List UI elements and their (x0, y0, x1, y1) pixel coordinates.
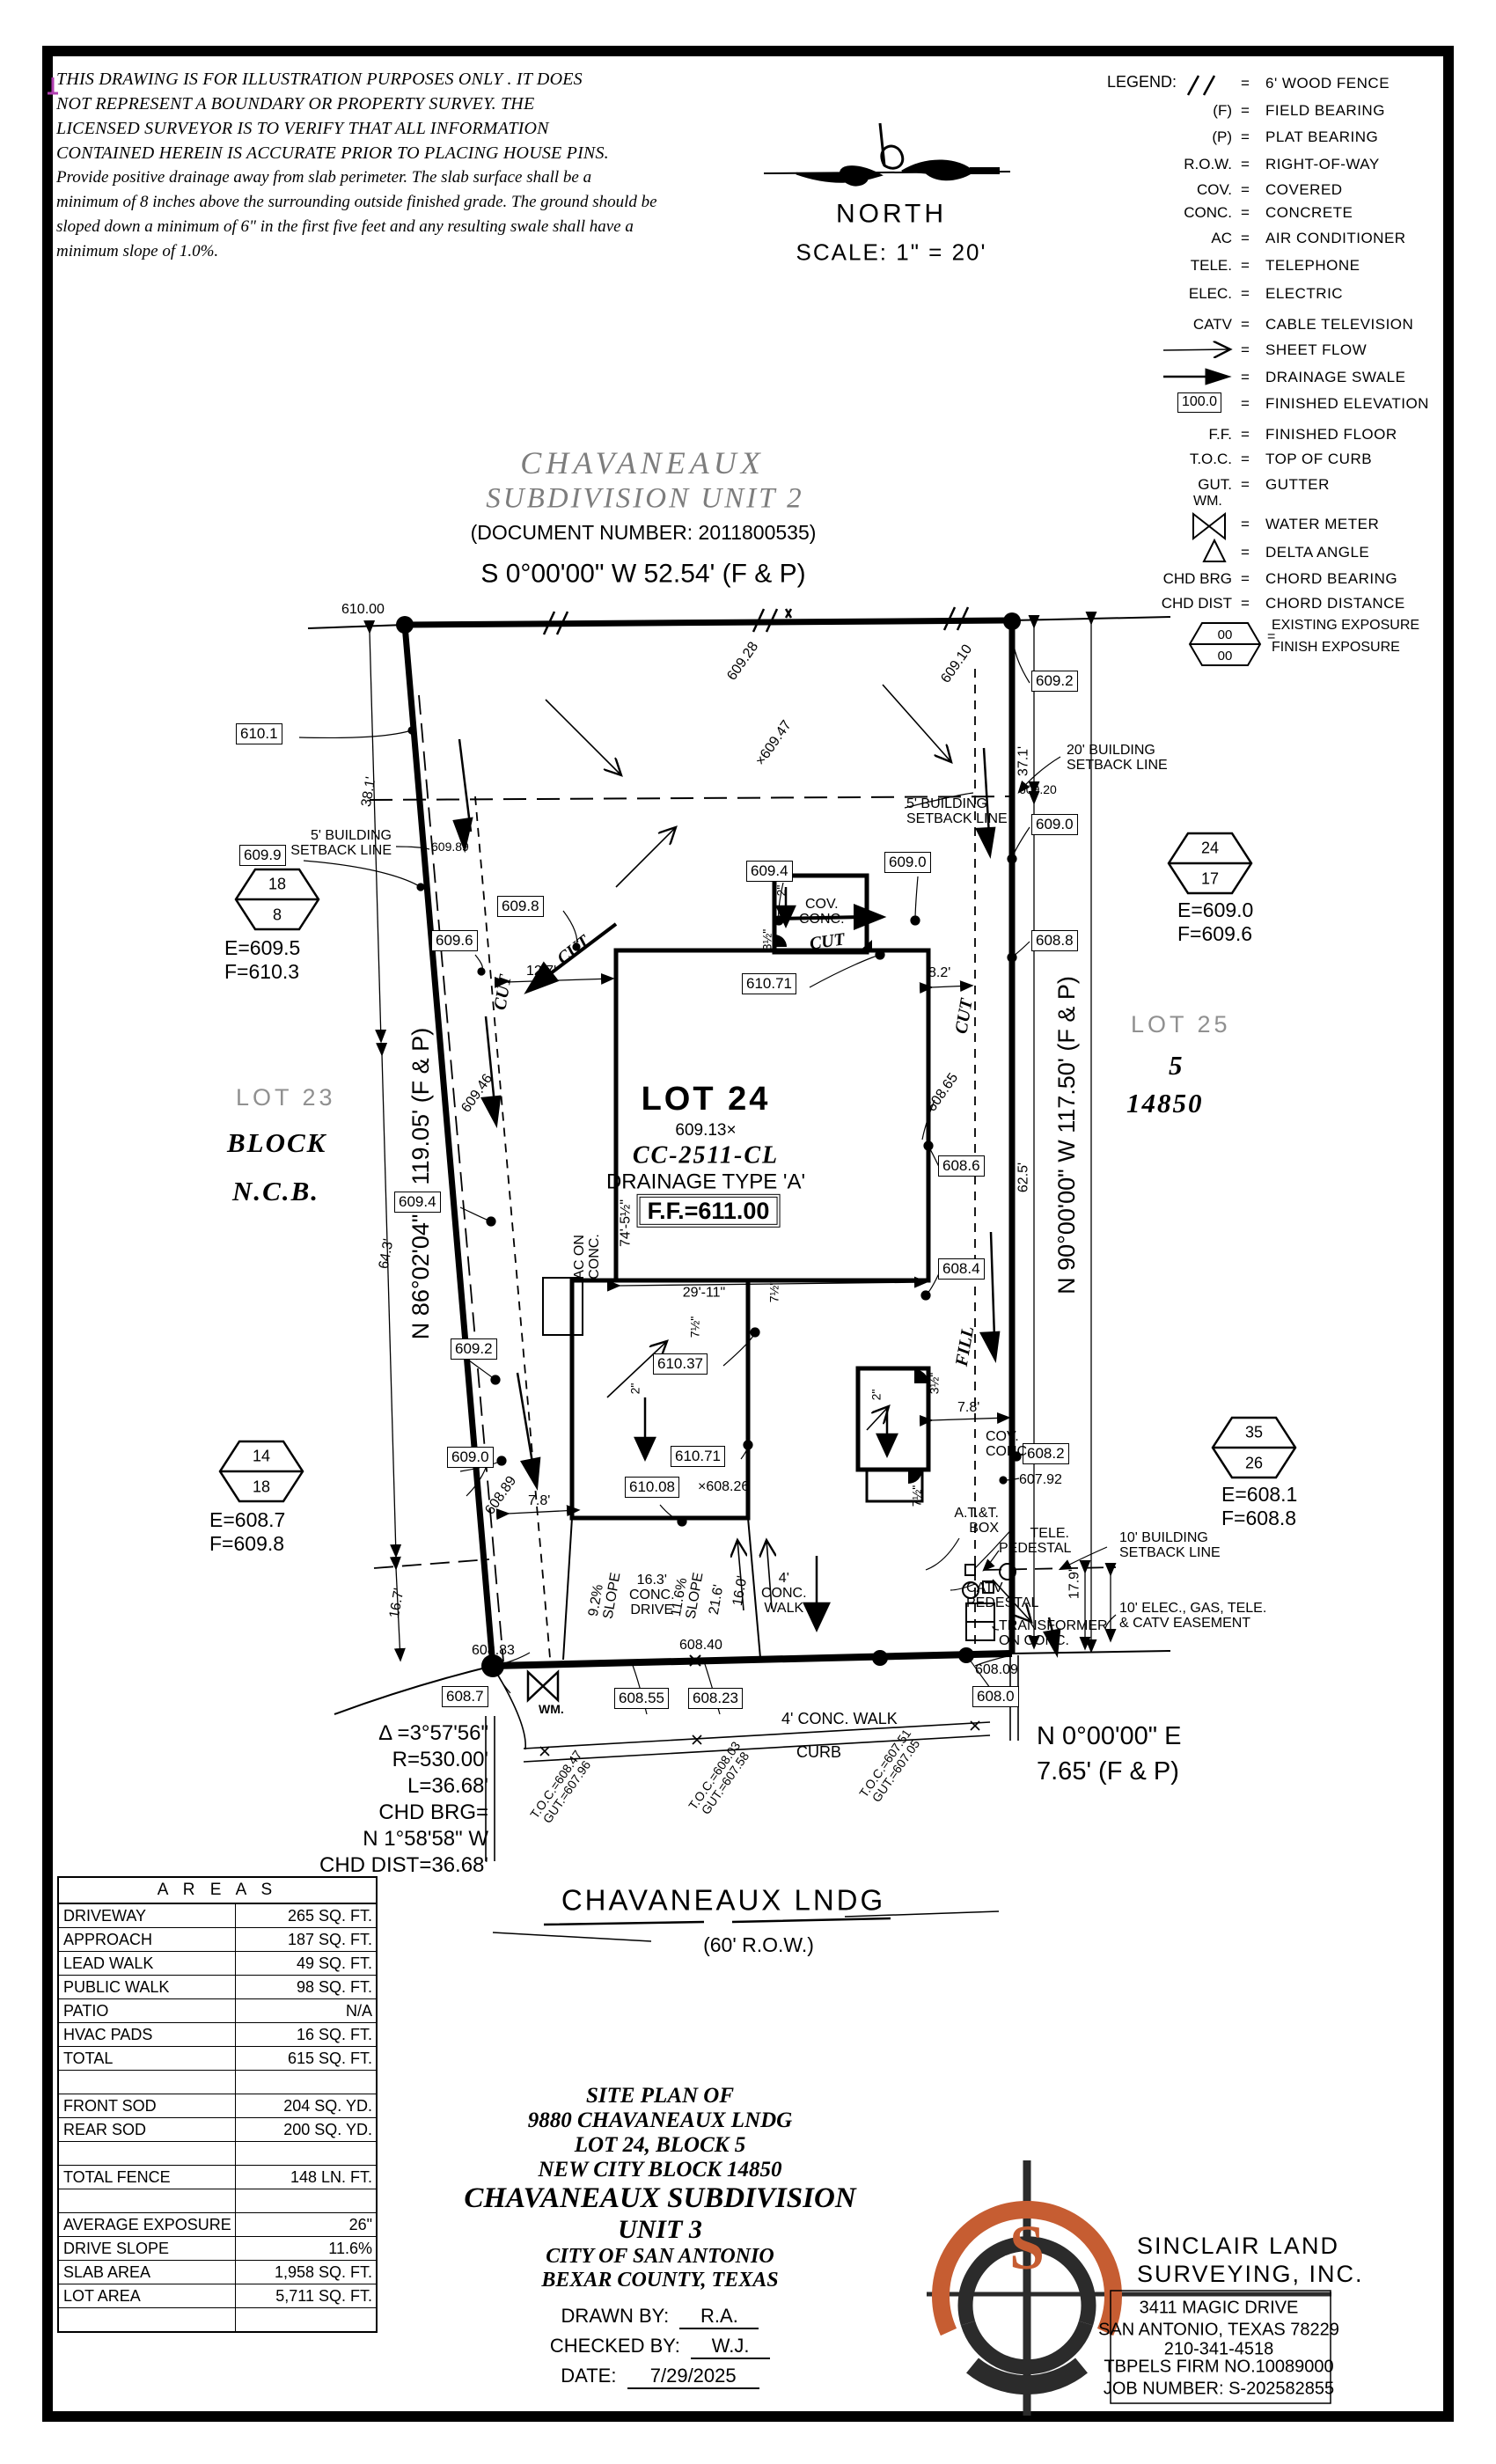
cov-conc-porch: COV.CONC. (986, 1430, 1031, 1460)
hex-14: 14 (253, 1448, 270, 1465)
street-name: CHAVANEAUX LNDG (561, 1886, 885, 1917)
areas-header: A R E A S (59, 1878, 376, 1904)
curb-label: CURB (796, 1744, 841, 1761)
conc-walk-lot: 4'CONC.WALK (761, 1572, 807, 1616)
legend-electric: ELECTRIC (1265, 285, 1343, 303)
spot-elevation: 610.00 (341, 603, 385, 618)
titleblock-line: CITY OF SAN ANTONIO (414, 2245, 906, 2269)
legend-sheet-flow: SHEET FLOW (1265, 341, 1367, 359)
legend-covered: COVERED (1265, 181, 1343, 199)
table-row: PATION/A (59, 1999, 376, 2023)
hex-existing: E=608.1 (1221, 1484, 1297, 1505)
titleblock-line: CHAVANEAUX SUBDIVISION (414, 2182, 906, 2215)
bearing-south-line-2: 7.65' (F & P) (1037, 1758, 1179, 1785)
easement-label: 10' ELEC., GAS, TELE.& CATV EASEMENT (1119, 1602, 1266, 1632)
firm-name-2: SURVEYING, INC. (1137, 2262, 1364, 2286)
table-row: APPROACH187 SQ. FT. (59, 1928, 376, 1952)
spot-elevation: 608.09 (975, 1663, 1018, 1678)
ncb-label: N.C.B. (232, 1177, 319, 1206)
bearing-west-line: N 86°02'04" E 119.05' (F & P) (408, 1028, 433, 1339)
hex-finish: F=609.6 (1177, 923, 1252, 944)
catv-pedestal-label: CATVPEDESTAL (966, 1581, 1038, 1611)
table-row: HVAC PADS16 SQ. FT. (59, 2023, 376, 2047)
street-row: (60' R.O.W.) (703, 1934, 814, 1955)
table-row (59, 2189, 376, 2213)
table-row: LOT AREA5,711 SQ. FT. (59, 2284, 376, 2308)
drainage-type: DRAINAGE TYPE 'A' (606, 1170, 805, 1192)
legend-ac: AIR CONDITIONER (1265, 230, 1406, 247)
tele-pedestal-label: TELE.PEDESTAL (999, 1527, 1069, 1557)
lot24-spot: 609.13× (675, 1122, 736, 1140)
hex-existing: E=608.7 (209, 1509, 285, 1530)
lot25-block: 5 (1169, 1052, 1183, 1081)
elevation-box: 610.37 (653, 1353, 708, 1375)
drainage-note-line: minimum of 8 inches above the surroundin… (56, 190, 725, 215)
lot25-label: LOT 25 (1131, 1012, 1231, 1037)
street-walk-label: 4' CONC. WALK (781, 1711, 898, 1727)
sinclair-logo-icon (927, 2160, 1331, 2416)
elevation-box: 610.71 (742, 973, 796, 994)
dim-17-9: 17.9' (1068, 1569, 1083, 1599)
elevation-box: 609.0 (1031, 814, 1078, 835)
table-row: TOTAL FENCE148 LN. FT. (59, 2166, 376, 2189)
table-row: TOTAL615 SQ. FT. (59, 2047, 376, 2071)
table-row: DRIVEWAY265 SQ. FT. (59, 1904, 376, 1928)
legend-chd-dist: CHORD DISTANCE (1265, 595, 1405, 612)
lot25-ncb: 14850 (1126, 1089, 1204, 1118)
hex-17: 17 (1201, 871, 1219, 888)
table-row: SLAB AREA1,958 SQ. FT. (59, 2261, 376, 2284)
hex-existing: E=609.5 (224, 937, 300, 958)
elevation-box: 608.23 (688, 1688, 743, 1709)
table-row: LEAD WALK49 SQ. FT. (59, 1952, 376, 1976)
hex-8: 8 (273, 907, 282, 924)
hex-35: 35 (1245, 1425, 1263, 1441)
drainage-note-line: sloped down a minimum of 6" in the first… (56, 215, 725, 239)
drainage-note-line: minimum slope of 1.0%. (56, 239, 725, 264)
elevation-box: 608.7 (442, 1686, 488, 1707)
dim-12-7: 12.7' (526, 964, 556, 979)
titleblock-line: LOT 24, BLOCK 5 (414, 2133, 906, 2158)
disclaimer-line: THIS DRAWING IS FOR ILLUSTRATION PURPOSE… (56, 67, 725, 92)
elevation-box: 608.55 (614, 1688, 669, 1709)
lot24-title: LOT 24 (642, 1082, 771, 1118)
table-row: DRIVE SLOPE11.6% (59, 2237, 376, 2261)
table-row: FRONT SOD204 SQ. YD. (59, 2094, 376, 2118)
dim-8-2: 8.2' (928, 966, 950, 981)
north-arrow-icon (764, 123, 1010, 185)
elevation-box: 609.6 (431, 930, 478, 951)
hex-24: 24 (1201, 840, 1219, 857)
dim-7half: 7½" (689, 1316, 702, 1338)
bearing-north-line: S 0°00'00" W 52.54' (F & P) (480, 560, 805, 588)
legend-catv: CABLE TELEVISION (1265, 316, 1413, 334)
elevation-box: 609.0 (447, 1447, 494, 1468)
areas-table: A R E A S DRIVEWAY265 SQ. FT. APPROACH18… (57, 1876, 378, 2333)
table-row: AVERAGE EXPOSURE26" (59, 2213, 376, 2237)
firm-phone: 210-341-4518 (1164, 2341, 1274, 2359)
spot-elevation: 609.20 (1019, 783, 1057, 796)
table-row: REAR SOD200 SQ. YD. (59, 2118, 376, 2142)
legend-row: RIGHT-OF-WAY (1265, 156, 1380, 173)
table-row (59, 2308, 376, 2331)
legend-swale: DRAINAGE SWALE (1265, 369, 1405, 386)
legend-hex-top: 00 (1218, 628, 1233, 642)
dim-62-5: 62.5' (1017, 1162, 1032, 1192)
legend-finish-exposure: FINISH EXPOSURE (1272, 641, 1400, 656)
firm-name-1: SINCLAIR LAND (1137, 2233, 1339, 2258)
curve-data: Δ =3°57'56"R=530.00' L=36.68'CHD BRG= N … (282, 1720, 488, 1879)
legend-finished-elev: FINISHED ELEVATION (1265, 395, 1429, 413)
setback-label-right: 5' BUILDINGSETBACK LINE (906, 797, 1008, 827)
legend-toc: TOP OF CURB (1265, 451, 1372, 468)
subdivision-title-1: CHAVANEAUX (520, 447, 765, 480)
hex-existing: E=609.0 (1177, 899, 1253, 920)
dim-7-8-porch: 7.8' (957, 1401, 979, 1416)
date-field: DATE: 7/29/2025 (414, 2365, 906, 2389)
titleblock-line: SITE PLAN OF (414, 2084, 906, 2108)
legend-ff: FINISHED FLOOR (1265, 426, 1397, 444)
table-row: PUBLIC WALK98 SQ. FT. (59, 1976, 376, 1999)
ac-on-conc: AC ONCONC. (573, 1234, 603, 1280)
north-label: NORTH (836, 200, 947, 228)
titleblock-line: NEW CITY BLOCK 14850 (414, 2158, 906, 2182)
spot-elevation: 607.92 (1019, 1473, 1062, 1488)
dim-7-8-left: 7.8' (528, 1494, 550, 1509)
dim-3half: 3½" (928, 1373, 942, 1394)
legend-field-bearing: FIELD BEARING (1265, 102, 1385, 120)
bearing-east-line: N 90°00'00" W 117.50' (F & P) (1054, 976, 1079, 1294)
legend-fence: 6' WOOD FENCE (1265, 75, 1390, 92)
titleblock-line: UNIT 3 (414, 2215, 906, 2245)
title-block: SITE PLAN OF 9880 CHAVANEAUX LNDG LOT 24… (414, 2084, 906, 2389)
cov-conc-top: COV.CONC. (799, 898, 845, 928)
plan-model: CC-2511-CL (633, 1142, 779, 1168)
elevation-box: 609.4 (394, 1192, 441, 1213)
water-meter-icon (528, 1672, 558, 1700)
logo-letter-s: S (1009, 2215, 1045, 2282)
table-row (59, 2071, 376, 2094)
disclaimer-line: NOT REPRESENT A BOUNDARY OR PROPERTY SUR… (56, 92, 725, 116)
legend-existing-exposure: EXISTING EXPOSURE (1272, 619, 1419, 634)
hex-18: 18 (268, 876, 286, 893)
conc-drive: 16.3'CONC.DRIVE (629, 1573, 675, 1617)
legend-telephone: TELEPHONE (1265, 257, 1360, 275)
elevation-box: 608.8 (1031, 930, 1078, 951)
spot-elevation: ×608.26 (698, 1480, 749, 1495)
drawn-by: DRAWN BY: R.A. (414, 2305, 906, 2329)
dim-2in: 2" (629, 1383, 642, 1395)
disclaimer-note: THIS DRAWING IS FOR ILLUSTRATION PURPOSE… (56, 67, 725, 264)
setback-label-20: 20' BUILDINGSETBACK LINE (1067, 744, 1168, 774)
dim-29-11: 29'-11" (683, 1287, 725, 1302)
lot23-label: LOT 23 (236, 1085, 336, 1110)
bearing-south-line-1: N 0°00'00" E (1037, 1723, 1181, 1749)
spot-elevation: 609.89 (431, 840, 469, 854)
site-plan-sheet: THIS DRAWING IS FOR ILLUSTRATION PURPOSE… (0, 0, 1496, 2464)
elevation-box: 609.2 (1031, 671, 1078, 692)
scale-label: SCALE: 1" = 20' (796, 240, 987, 264)
hex-finish: F=609.8 (209, 1533, 284, 1554)
legend-wm-label: WM. (1193, 495, 1222, 510)
block-label: BLOCK (227, 1129, 326, 1158)
titleblock-line: 9880 CHAVANEAUX LNDG (414, 2108, 906, 2133)
legend-concrete: CONCRETE (1265, 204, 1353, 222)
elevation-box: 608.6 (938, 1155, 985, 1177)
hex-26: 26 (1245, 1456, 1263, 1472)
wm-label: WM. (539, 1703, 564, 1716)
table-row (59, 2142, 376, 2166)
titleblock-line: BEXAR COUNTY, TEXAS (414, 2269, 906, 2292)
legend-delta: DELTA ANGLE (1265, 544, 1369, 561)
firm-job-number: JOB NUMBER: S-202582855 (1104, 2380, 1334, 2399)
att-box-label: A.T.&T.BOX (946, 1507, 999, 1536)
disclaimer-line: CONTAINED HEREIN IS ACCURATE PRIOR TO PL… (56, 141, 725, 165)
checked-by: CHECKED BY: W.J. (414, 2335, 906, 2359)
dim-3half: 3½" (761, 929, 774, 950)
legend-water-meter: WATER METER (1265, 516, 1379, 533)
hex-finish: F=608.8 (1221, 1507, 1296, 1529)
elevation-box: 609.8 (497, 896, 544, 917)
elevation-box: 608.4 (938, 1258, 985, 1280)
firm-address-2: SAN ANTONIO, TEXAS 78229 (1098, 2321, 1339, 2340)
dim-37-1: 37.1' (1017, 746, 1032, 776)
elevation-box: 609.2 (451, 1338, 497, 1360)
subdivision-title-2: SUBDIVISION UNIT 2 (486, 484, 803, 515)
setback-label-10: 10' BUILDINGSETBACK LINE (1119, 1531, 1221, 1561)
spot-elevation: 608.83 (472, 1644, 515, 1659)
elevation-box: 610.71 (671, 1446, 725, 1467)
disclaimer-line: LICENSED SURVEYOR IS TO VERIFY THAT ALL … (56, 116, 725, 141)
spot-elevation: 608.40 (679, 1639, 722, 1654)
dim-2in: 2" (870, 1390, 884, 1401)
elevation-box: 609.0 (884, 852, 931, 873)
elevation-box: 609.4 (746, 861, 793, 882)
dim-74-5: 74'-5½" (620, 1199, 634, 1247)
setback-label-left: 5' BUILDINGSETBACK LINE (264, 829, 392, 859)
document-number: (DOCUMENT NUMBER: 2011800535) (471, 522, 817, 543)
legend-plat-bearing: PLAT BEARING (1265, 128, 1378, 146)
dim-7half: 7½" (911, 1485, 924, 1507)
legend-hex-bot: 00 (1218, 649, 1233, 664)
legend-elev-box: 100.0 (1177, 392, 1221, 413)
dim-7half: 7½" (768, 1281, 781, 1302)
legend-chd-brg: CHORD BEARING (1265, 570, 1397, 588)
drainage-note-line: Provide positive drainage away from slab… (56, 165, 725, 190)
transformer-label: TRANSFORMERON CONC. (999, 1619, 1108, 1649)
hex-18b: 18 (253, 1479, 270, 1496)
legend-gutter: GUTTER (1265, 476, 1330, 494)
dim-2in: 2" (775, 885, 788, 897)
hex-finish: F=610.3 (224, 961, 299, 982)
firm-address-1: 3411 MAGIC DRIVE (1140, 2299, 1299, 2318)
finished-floor: F.F.=611.00 (637, 1194, 781, 1228)
elevation-box: 610.1 (236, 723, 282, 744)
firm-tbpels: TBPELS FIRM NO.10089000 (1104, 2358, 1333, 2377)
elevation-box: 610.08 (625, 1477, 679, 1498)
elevation-box: 608.0 (972, 1686, 1019, 1707)
